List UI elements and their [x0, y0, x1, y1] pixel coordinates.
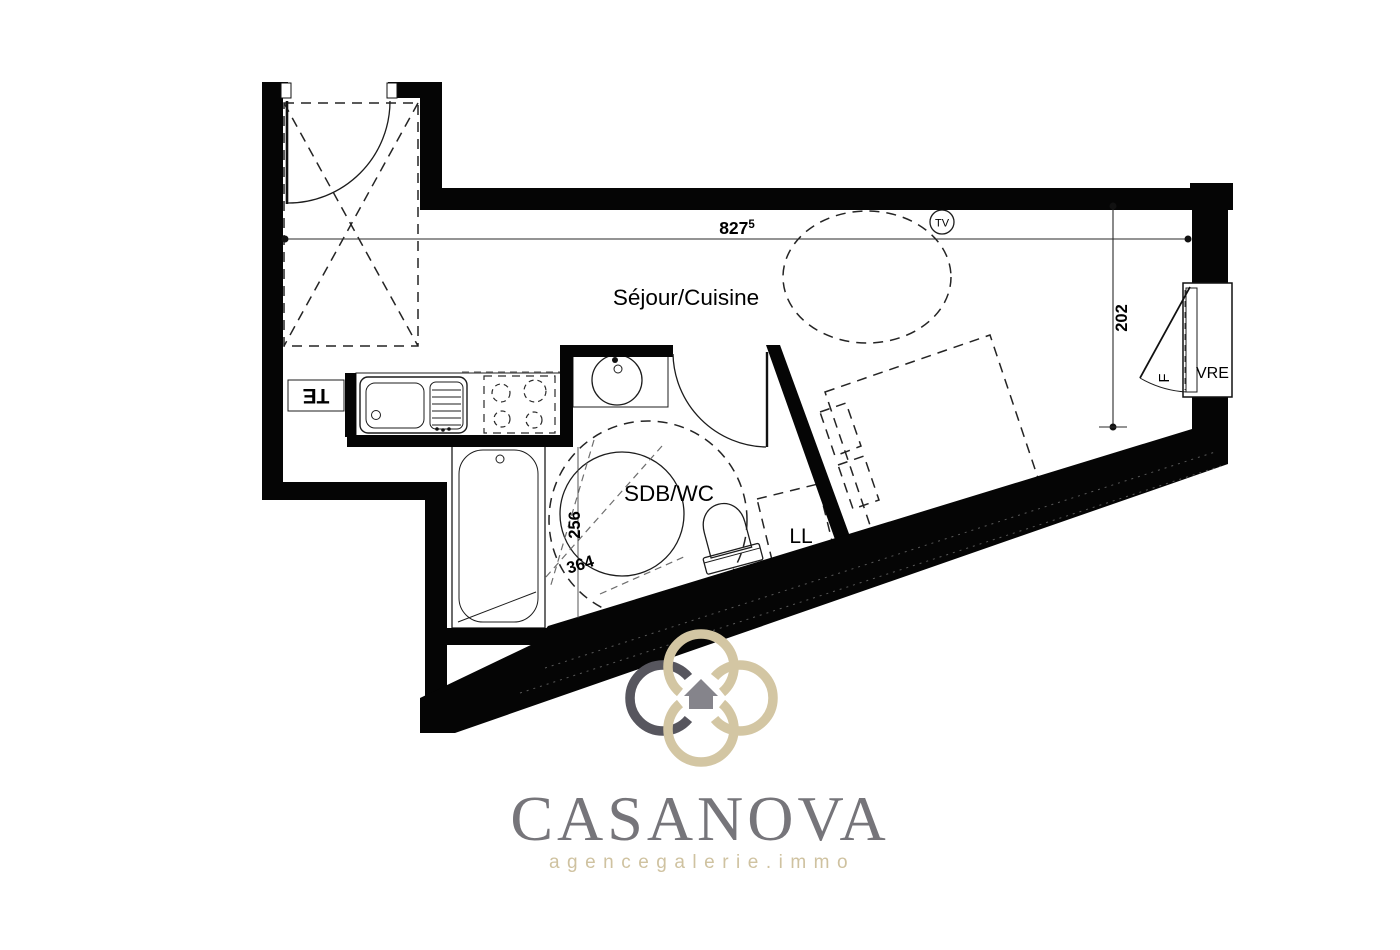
kitchen-sink	[360, 377, 467, 433]
bathroom-door	[673, 352, 767, 447]
electrical-panel: TE	[288, 380, 344, 411]
dim-top-width-text: 8275	[719, 218, 755, 238]
partition-diagonal	[766, 345, 852, 548]
toilet	[690, 497, 763, 575]
floorplan-canvas: TE LL TV	[0, 0, 1400, 950]
agency-tagline: agencegalerie.immo	[549, 852, 855, 873]
closet-placard	[284, 103, 418, 346]
window-tag-label: VRE	[1196, 365, 1229, 382]
table-dashed	[783, 211, 951, 343]
window-leaf-label: F	[1156, 373, 1173, 382]
dim-right-depth-text: 202	[1113, 304, 1131, 332]
dimension-right-depth: 202	[1099, 203, 1131, 431]
dim-bathroom-length-text: 364	[564, 552, 596, 578]
logo-house-icon	[684, 679, 718, 709]
pillow	[820, 403, 861, 456]
tv-label: TV	[935, 218, 950, 230]
pillow	[838, 456, 879, 509]
entry-door	[287, 101, 390, 204]
door-jamb	[281, 83, 291, 98]
room-label-living-kitchen: Séjour/Cuisine	[613, 285, 759, 310]
floorplan-svg: TE LL TV	[0, 0, 1400, 950]
bathtub	[452, 443, 545, 628]
dim-bathroom-width-text: 256	[566, 511, 584, 539]
door-jamb	[387, 83, 397, 98]
tv-badge: TV	[930, 210, 954, 234]
window: F VRE	[1140, 283, 1232, 397]
washing-machine-label: LL	[789, 525, 812, 548]
cooktop	[484, 376, 555, 433]
agency-name: CASANOVA	[510, 783, 889, 854]
electrical-panel-label: TE	[303, 384, 330, 407]
room-label-bathroom: SDB/WC	[624, 481, 714, 506]
washbasin	[573, 352, 668, 407]
